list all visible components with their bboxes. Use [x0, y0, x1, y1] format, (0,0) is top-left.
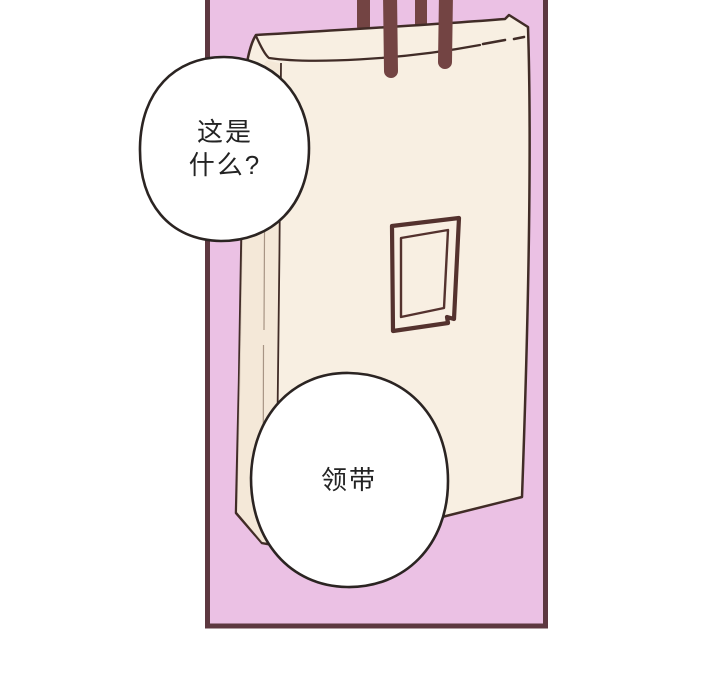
answer-line-1: 领带	[321, 464, 377, 497]
comic-page: 这是 什么? 领带	[0, 0, 720, 700]
answer-bubble-text: 领带	[250, 373, 448, 593]
question-line-2: 什么?	[189, 149, 261, 182]
bag-handle-front-right	[445, 0, 446, 62]
question-line-1: 这是	[197, 116, 253, 149]
comic-panel-art	[0, 0, 720, 700]
bag-handle-front-left	[390, 0, 391, 71]
question-bubble-text: 这是 什么?	[140, 57, 310, 251]
